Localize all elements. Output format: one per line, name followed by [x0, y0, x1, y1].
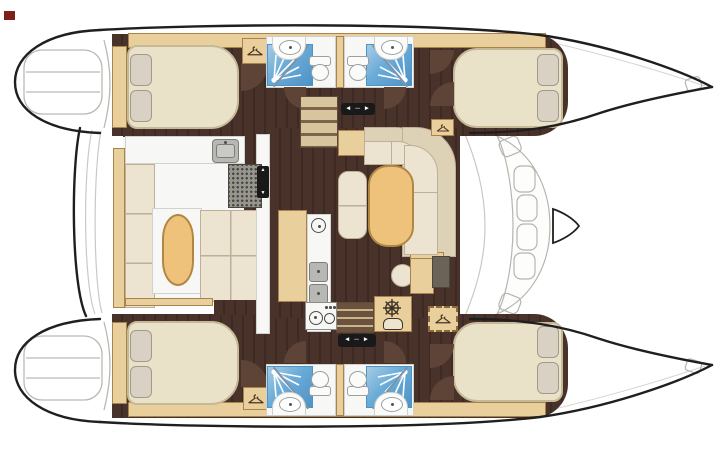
lid-dot	[317, 270, 320, 273]
pillow	[537, 362, 559, 394]
stbd-companionway-stairs	[336, 302, 374, 333]
port-fwd-wardrobe	[431, 119, 454, 136]
hanger-icon	[245, 45, 265, 57]
galley-sink-dot	[318, 225, 321, 228]
lid-dot	[317, 292, 320, 295]
faucet-dot	[224, 141, 227, 144]
arrow-down-icon: ▼	[261, 191, 266, 196]
pillow	[537, 326, 559, 358]
knob-dot	[333, 306, 336, 309]
aft-platform-lines	[86, 130, 102, 314]
toilet-bowl	[349, 371, 367, 388]
pillow	[130, 54, 152, 86]
saloon-table	[368, 165, 414, 247]
stbd-aft-headboard	[112, 322, 127, 404]
helm-wardrobe	[428, 306, 458, 332]
hanger-icon	[435, 123, 451, 133]
galley-counter-wood	[278, 210, 307, 302]
washbasin	[381, 40, 403, 55]
cockpit-sofa-left	[125, 164, 155, 308]
head-divider	[336, 36, 344, 88]
settee-end-cabinet	[338, 130, 366, 156]
knob-dot	[325, 306, 328, 309]
toilet-bowl	[349, 64, 367, 81]
toilet-bowl	[311, 64, 329, 81]
sliding-door-badge: ◄ ─ ►	[338, 334, 376, 347]
pillow	[537, 54, 559, 86]
burner-dot	[314, 316, 317, 319]
catamaran-floorplan: ◄ ─ ► ◄ ─ ►	[0, 0, 727, 450]
washbasin	[279, 397, 301, 412]
port-aft-headboard	[112, 46, 127, 128]
ships-wheel-icon	[382, 298, 402, 318]
knob-dot	[329, 306, 332, 309]
pillow	[130, 90, 152, 122]
port-aft-wardrobe	[242, 38, 267, 64]
cockpit-sofa-back	[113, 148, 125, 308]
hanger-icon	[433, 313, 453, 325]
toilet-bowl	[311, 371, 329, 388]
maroon-chip	[4, 11, 15, 20]
patio-door-slider: ▲ ▼	[257, 166, 269, 198]
nav-desk	[410, 258, 434, 294]
sliding-door-badge: ◄ ─ ►	[341, 103, 375, 115]
hanger-icon	[246, 393, 266, 405]
washbasin	[381, 397, 403, 412]
pillow	[130, 330, 152, 362]
stbd-aft-wardrobe	[243, 387, 268, 410]
pillow	[537, 90, 559, 122]
foredeck-bench-outline	[497, 135, 550, 315]
cockpit-sink-basin	[216, 144, 235, 158]
saloon-bench	[338, 171, 367, 239]
galley-stove	[305, 302, 337, 330]
pillow	[130, 366, 152, 398]
burner-small	[324, 313, 335, 324]
head-divider	[336, 364, 344, 416]
helm-seat	[383, 318, 403, 330]
cockpit-table	[162, 214, 194, 286]
port-companionway-stairs	[300, 96, 338, 148]
nav-panel	[432, 256, 450, 288]
washbasin	[279, 40, 301, 55]
cockpit-step-trim	[125, 298, 213, 306]
cockpit-sofa-right	[200, 210, 262, 302]
coachroof-edge-line	[459, 120, 485, 330]
arrow-up-icon: ▲	[261, 168, 266, 173]
